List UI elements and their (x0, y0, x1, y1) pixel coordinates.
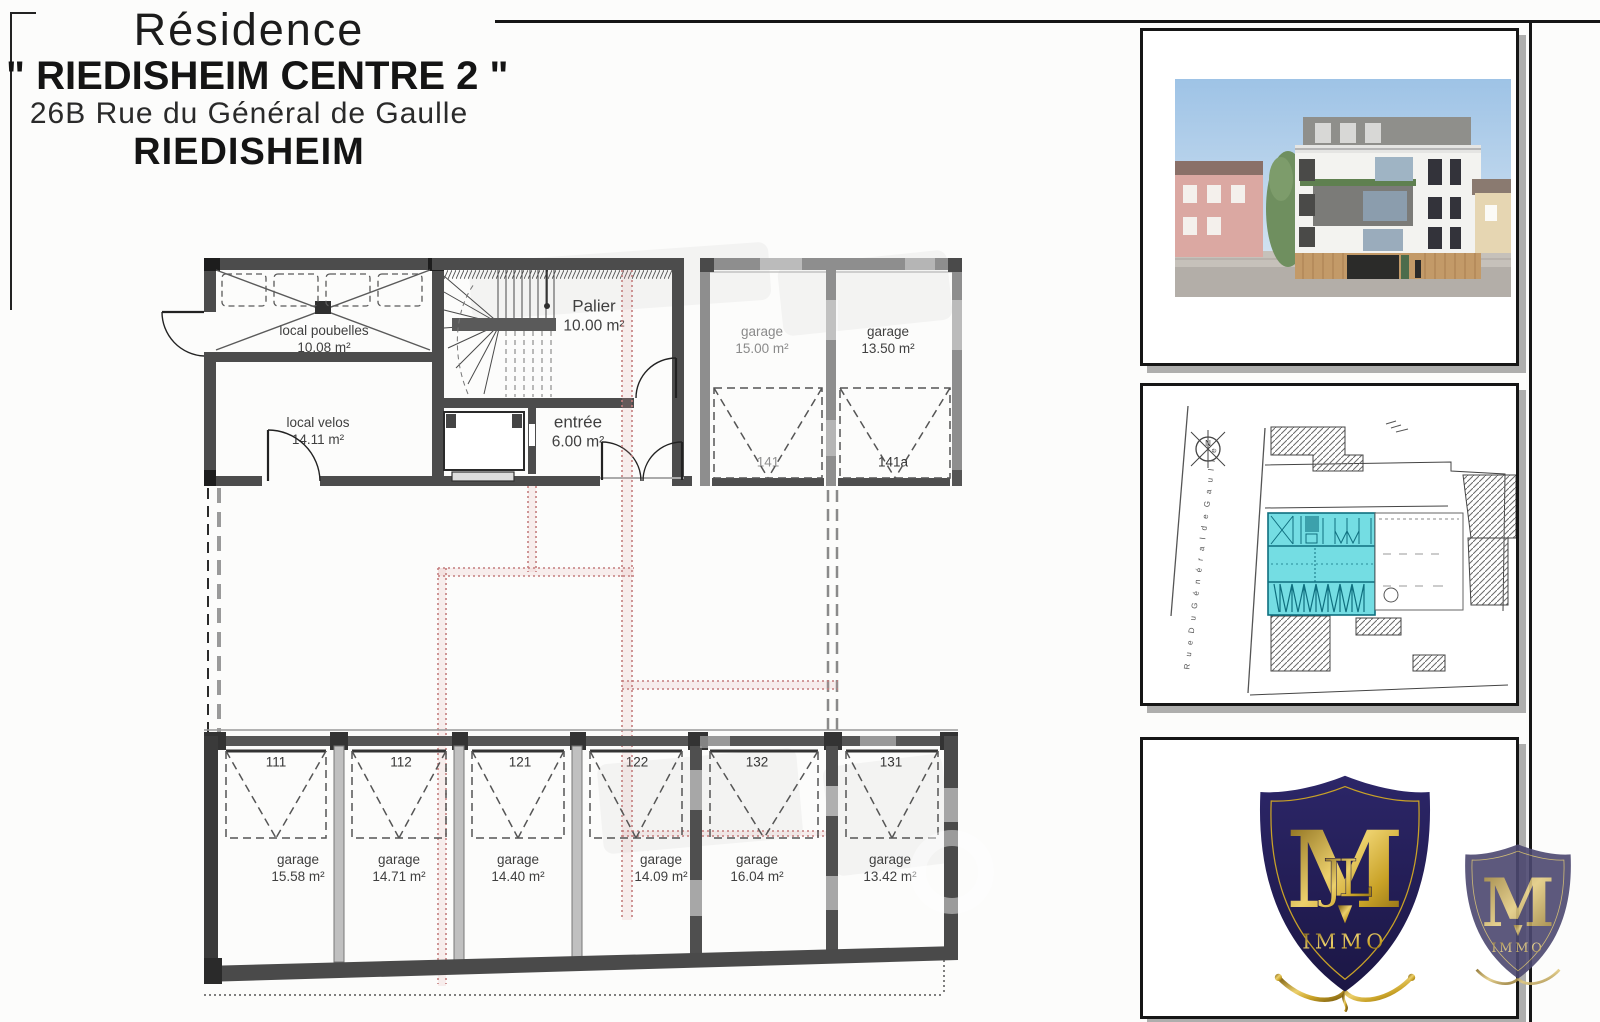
site-plan-drawing: N R u e D u G é n é r a l d e G a u l l … (1143, 386, 1516, 697)
logo-brand-text: IMMO (1302, 930, 1388, 954)
plan-sheet: Résidence " RIEDISHEIM CENTRE 2 " 26B Ru… (0, 0, 1600, 1022)
plot-extension (1375, 513, 1463, 610)
agency-logo-shield-small: M IMMO (1459, 841, 1577, 991)
agency-logo-shield: M JL IMMO (1255, 770, 1435, 1012)
logo-brand-text-small: IMMO (1491, 941, 1544, 956)
door-velos (268, 430, 320, 481)
door-poubelles (162, 312, 204, 356)
site-plan-panel: N R u e D u G é n é r a l d e G a u l l … (1140, 383, 1519, 706)
room-poubelles-velos (162, 258, 444, 486)
door-entree (600, 442, 684, 481)
elevator-shaft (444, 406, 536, 481)
floor-plan-drawing (0, 0, 1000, 1022)
subject-building-highlight (1268, 513, 1375, 615)
door-palier (636, 358, 676, 398)
logo-monogram-jl: JL (1318, 849, 1373, 909)
photo-panel (1140, 28, 1519, 366)
stair-block (432, 258, 692, 486)
garage-block-lower (204, 730, 958, 995)
staircase (444, 270, 556, 397)
street-name: R u e D u G é n é r a l d e G a u l l e (1182, 445, 1218, 670)
courtyard-lines (208, 270, 838, 986)
building-photo (1175, 79, 1511, 297)
logo-panel: M JL IMMO M IMMO (1140, 737, 1519, 1019)
